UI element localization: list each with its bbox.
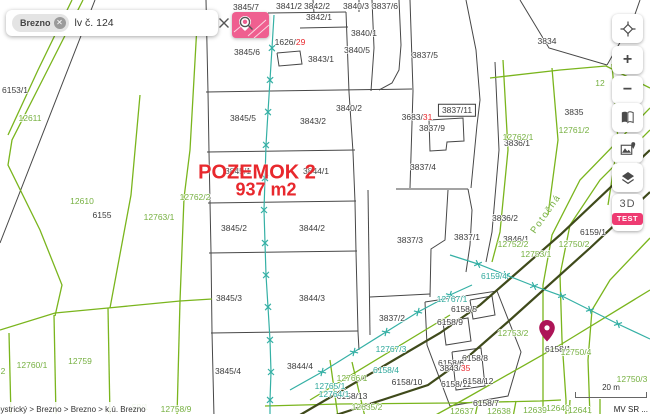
photo-map-button[interactable] [612, 134, 643, 163]
zoom-in-button[interactable]: + [612, 46, 643, 74]
search-input[interactable] [75, 17, 210, 29]
map-stage[interactable]: 3845/73841/23842/23842/13840/33837/63840… [0, 0, 650, 417]
pozemok-area: 937 m2 [235, 180, 296, 201]
scale-label: 20 m [575, 383, 647, 392]
zoom-out-button[interactable]: − [612, 76, 643, 104]
locate-button[interactable] [612, 14, 643, 43]
search-icon[interactable] [238, 15, 254, 31]
test-badge: TEST [612, 213, 643, 225]
image-pin-icon [619, 140, 637, 158]
mode-3d-label: 3D [619, 198, 635, 210]
chip-remove-icon[interactable]: ✕ [54, 17, 66, 29]
basemap-switch-button[interactable] [612, 103, 643, 132]
map-attribution: MV SR ... [614, 405, 648, 414]
search-chip-brezno[interactable]: Brezno ✕ [12, 14, 69, 32]
layers-icon [619, 169, 637, 187]
clear-search-icon[interactable] [216, 15, 232, 31]
scale-line [575, 392, 647, 398]
mode-3d-button[interactable]: 3D TEST [612, 194, 643, 231]
locate-icon [619, 20, 637, 38]
search-bar[interactable]: Brezno ✕ [6, 10, 218, 36]
scale-bar: 20 m [575, 383, 647, 398]
breadcrumb-path: bystrický > Brezno > Brezno > k.ú. Brezn… [0, 405, 146, 414]
selected-location-pin[interactable] [537, 319, 557, 343]
chip-label: Brezno [20, 18, 51, 28]
book-icon [619, 109, 636, 126]
layers-button[interactable] [612, 163, 643, 192]
